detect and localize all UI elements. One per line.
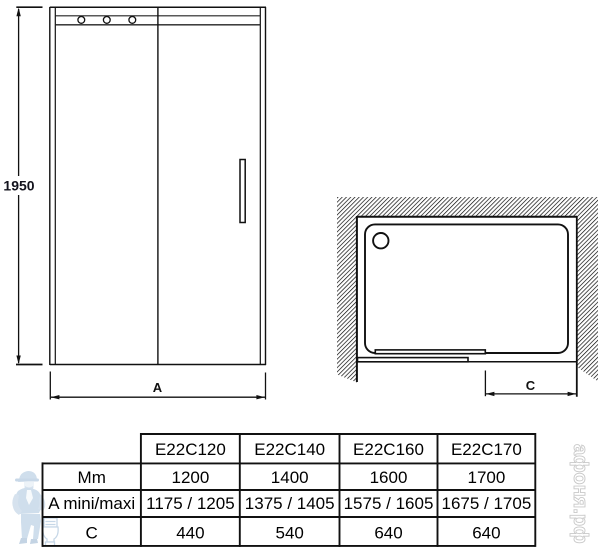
svg-text:1575 / 1605: 1575 / 1605 — [344, 494, 434, 513]
svg-text:афоня.рф: афоня.рф — [569, 444, 591, 544]
svg-text:1700: 1700 — [467, 468, 505, 487]
svg-text:640: 640 — [472, 523, 500, 542]
svg-text:A mini/maxi: A mini/maxi — [48, 494, 135, 513]
svg-text:1375 / 1405: 1375 / 1405 — [245, 494, 335, 513]
svg-text:E22C160: E22C160 — [353, 440, 424, 459]
svg-text:A: A — [153, 380, 163, 395]
svg-text:440: 440 — [176, 523, 204, 542]
svg-text:1950: 1950 — [3, 178, 34, 194]
svg-text:E22C120: E22C120 — [155, 440, 226, 459]
svg-text:C: C — [526, 378, 536, 393]
svg-text:1175 / 1205: 1175 / 1205 — [146, 494, 235, 513]
svg-text:E22C140: E22C140 — [254, 440, 325, 459]
svg-text:1600: 1600 — [370, 468, 408, 487]
svg-text:1675 / 1705: 1675 / 1705 — [441, 494, 531, 513]
svg-text:540: 540 — [276, 523, 304, 542]
svg-text:E22C170: E22C170 — [451, 440, 522, 459]
svg-text:Mm: Mm — [78, 468, 106, 487]
svg-text:1200: 1200 — [171, 468, 209, 487]
svg-text:1400: 1400 — [271, 468, 309, 487]
svg-text:640: 640 — [374, 523, 402, 542]
svg-text:C: C — [86, 523, 98, 542]
